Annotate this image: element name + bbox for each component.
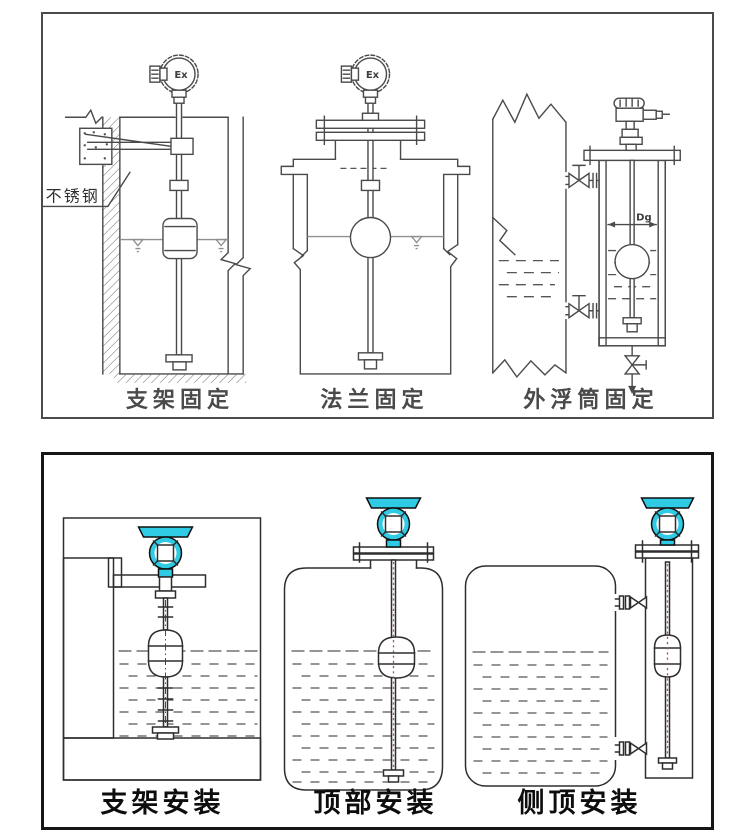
diagram-label-top-install: 顶部安装 bbox=[314, 787, 438, 819]
stem-end-stop bbox=[153, 727, 179, 739]
transmitter-head bbox=[642, 498, 694, 545]
side-top-install-diagram: 侧顶安装 bbox=[466, 498, 699, 819]
flange-fixing-diagram: Ex 法兰固定 bbox=[281, 55, 469, 413]
drain-valve bbox=[625, 346, 646, 394]
tank-liquid bbox=[499, 261, 559, 297]
bracket-install-diagram: 支架安装 bbox=[64, 518, 261, 819]
tank-outline bbox=[285, 568, 443, 790]
external-chamber-fixing-diagram: Dg 外浮筒固定 bbox=[493, 94, 680, 413]
isolation-valve-top bbox=[566, 165, 599, 187]
ex-transmitter-head: Ex bbox=[150, 55, 198, 103]
diagram-label-external-chamber-fixing: 外浮筒固定 bbox=[523, 387, 658, 413]
installation-methods-panel: 支架安装 顶部安装 bbox=[41, 452, 714, 830]
float bbox=[379, 637, 415, 678]
installation-methods-drawing: 支架安装 顶部安装 bbox=[44, 455, 711, 827]
ex-marking: Ex bbox=[174, 70, 188, 81]
fixing-methods-panel: Ex 不锈钢 支架固定 bbox=[41, 12, 714, 419]
connection-valve-bottom bbox=[616, 742, 647, 755]
wall-bracket bbox=[80, 128, 171, 164]
cable-gland-icon bbox=[643, 110, 656, 119]
stem-end-stop bbox=[358, 353, 382, 369]
isolation-valve-bottom bbox=[566, 296, 599, 318]
float-ball bbox=[615, 245, 649, 279]
connection-valve-top bbox=[616, 596, 647, 609]
float bbox=[163, 219, 197, 259]
bracket-fixing-diagram: Ex 不锈钢 支架固定 bbox=[44, 55, 251, 413]
display-window bbox=[158, 545, 174, 561]
stem-collar bbox=[361, 180, 379, 190]
svg-text:不锈钢: 不锈钢 bbox=[46, 186, 100, 205]
ground-hatch bbox=[114, 374, 246, 383]
tank-outline bbox=[466, 566, 616, 786]
diagram-label-bracket-fixing: 支架固定 bbox=[126, 387, 234, 413]
liquid bbox=[292, 651, 436, 782]
ex-marking: Ex bbox=[366, 70, 380, 81]
stem-end-stop bbox=[384, 770, 404, 782]
brick-floor bbox=[64, 738, 261, 780]
diagram-label-bracket-install: 支架安装 bbox=[101, 788, 225, 819]
liquid bbox=[119, 651, 258, 736]
display-window bbox=[386, 516, 402, 532]
diagram-label-flange-fixing: 法兰固定 bbox=[320, 387, 428, 413]
sensor-stem bbox=[630, 160, 634, 317]
diagram-label-side-top-install: 侧顶安装 bbox=[518, 788, 642, 819]
transmitter-head bbox=[367, 498, 421, 547]
stem-collar bbox=[170, 180, 188, 190]
stem-end-stop bbox=[166, 355, 192, 370]
chamber-flange bbox=[584, 150, 680, 160]
display-window bbox=[660, 516, 676, 532]
ex-transmitter-head: Ex bbox=[341, 55, 389, 120]
stem-clamp bbox=[171, 138, 193, 154]
fixing-methods-drawing: Ex 不锈钢 支架固定 bbox=[43, 14, 712, 417]
top-install-diagram: 顶部安装 bbox=[285, 498, 443, 819]
tank-wall-break bbox=[221, 117, 250, 374]
liquid bbox=[473, 652, 609, 773]
float bbox=[655, 635, 681, 677]
float-ball bbox=[350, 218, 390, 258]
transmitter-head bbox=[614, 98, 669, 150]
brick-wall bbox=[64, 558, 114, 738]
tank-break-line bbox=[493, 218, 515, 255]
